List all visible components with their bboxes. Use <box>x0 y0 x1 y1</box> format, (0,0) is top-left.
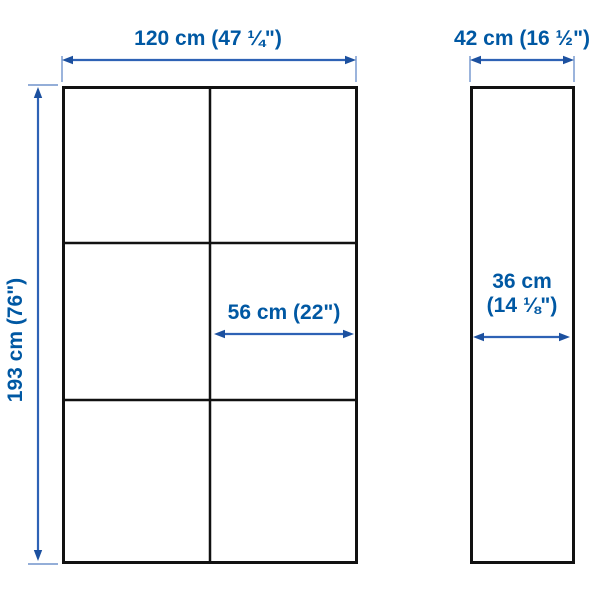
side-depth-dimension-arrow <box>470 56 574 82</box>
side-view-outline <box>472 88 574 563</box>
dimension-diagram: 120 cm (47 ¼") 42 cm (16 ½") 193 cm (76"… <box>0 0 600 600</box>
door-width-label: 56 cm (22") <box>214 301 354 325</box>
side-view <box>472 88 574 563</box>
inner-depth-label-line1: 36 cm <box>492 270 552 293</box>
front-width-label: 120 cm (47 ¼") <box>60 27 356 51</box>
height-label: 193 cm (76") <box>4 190 34 490</box>
inner-depth-label-line2: (14 ⅛") <box>487 294 558 317</box>
inner-depth-label: 36 cm(14 ⅛") <box>462 270 582 318</box>
side-depth-label: 42 cm (16 ½") <box>432 27 600 51</box>
front-width-dimension-arrow <box>62 56 356 82</box>
